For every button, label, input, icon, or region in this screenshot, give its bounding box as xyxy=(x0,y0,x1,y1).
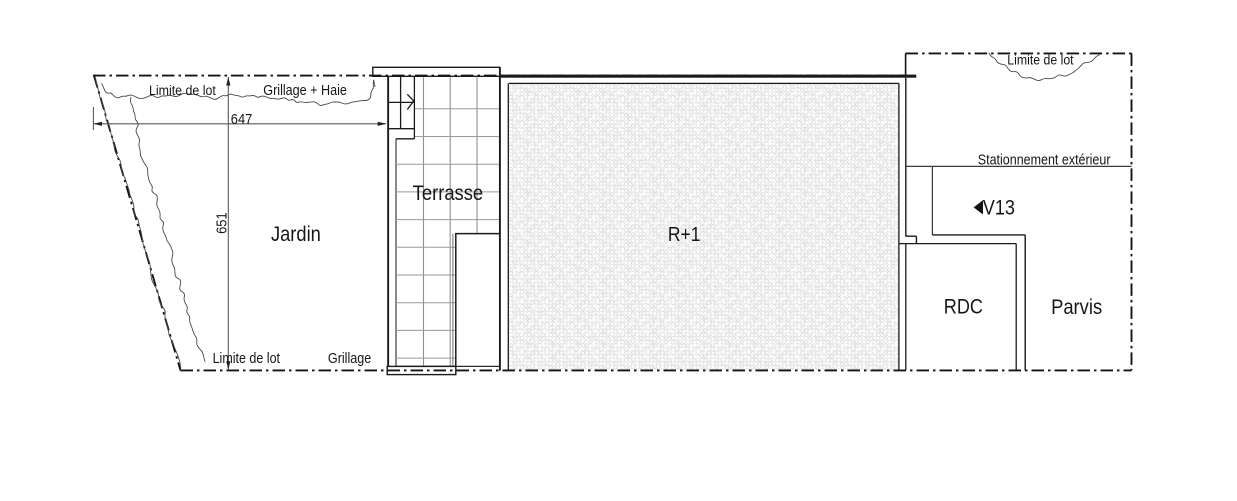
svg-text:Jardin: Jardin xyxy=(271,223,321,246)
svg-text:Stationnement extérieur: Stationnement extérieur xyxy=(978,152,1111,168)
svg-text:Grillage: Grillage xyxy=(328,350,371,366)
svg-text:V13: V13 xyxy=(983,196,1015,219)
svg-text:Limite de lot: Limite de lot xyxy=(1007,52,1074,68)
svg-text:R+1: R+1 xyxy=(668,223,701,245)
svg-text:RDC: RDC xyxy=(944,295,983,318)
svg-text:Grillage + Haie: Grillage + Haie xyxy=(263,82,347,98)
svg-text:647: 647 xyxy=(231,110,253,127)
svg-text:651: 651 xyxy=(213,212,230,234)
svg-text:Parvis: Parvis xyxy=(1051,296,1102,319)
svg-text:Limite de lot: Limite de lot xyxy=(213,350,281,366)
svg-text:Limite de lot: Limite de lot xyxy=(149,82,216,98)
svg-text:Terrasse: Terrasse xyxy=(413,182,484,205)
